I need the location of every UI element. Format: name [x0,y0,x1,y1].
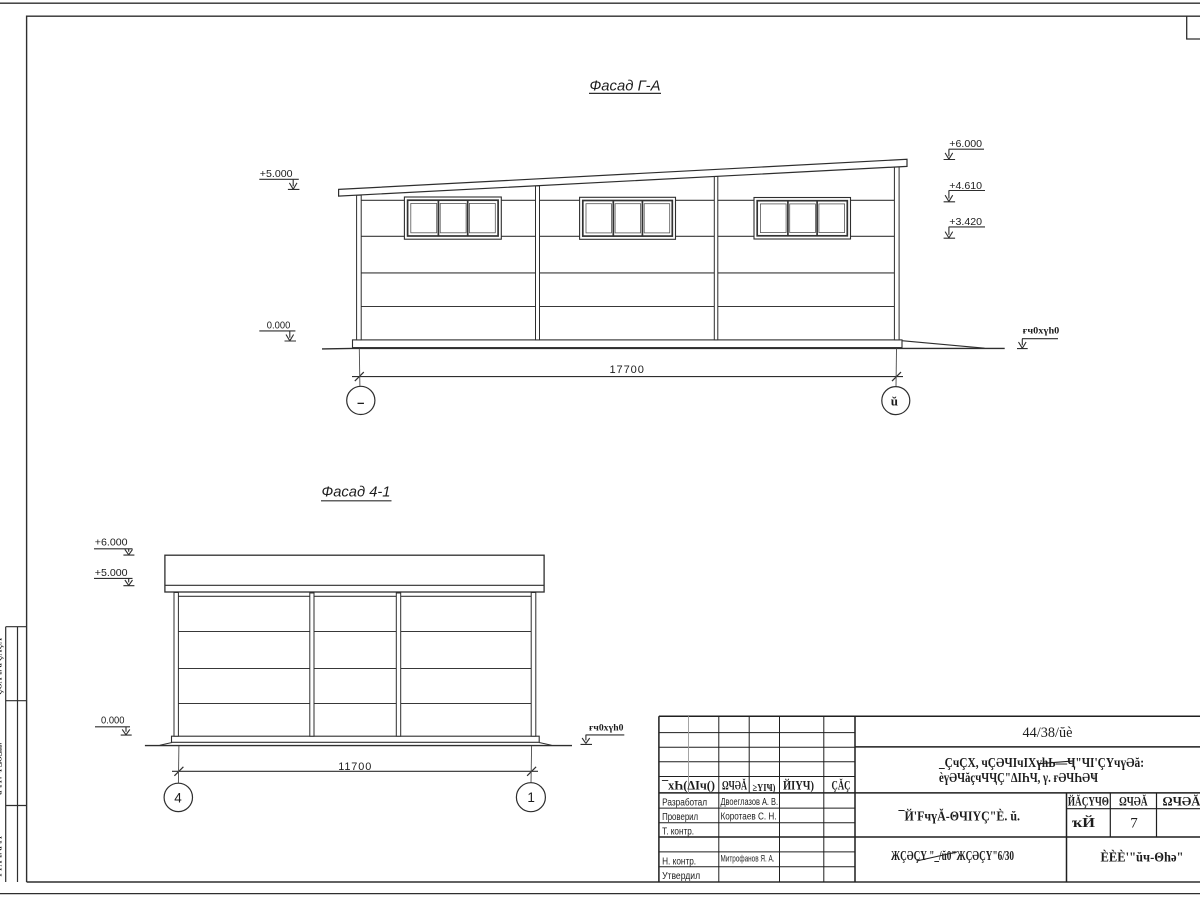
svg-text:ҰҰĂҸ. ŭҸΥ: ҰҰĂҸ. ŭҸΥ [0,834,4,878]
svg-text:Фасад Г-А: Фасад Г-А [590,78,661,95]
svg-text:+6.000: +6.000 [95,536,128,548]
svg-text:ғч0хүh0: ғч0хүh0 [589,723,624,733]
svg-text:¯хҺ(ΔIч(): ¯хҺ(ΔIч() [661,779,715,793]
svg-text:11700: 11700 [338,761,372,773]
svg-text:+5.000: +5.000 [95,567,128,579]
svg-text:¯Й'FчүĂ-ΘЧIҮÇ"È. ŭ.: ¯Й'FчүĂ-ΘЧIҮÇ"È. ŭ. [898,808,1020,825]
svg-text:ÇĂÇ: ÇĂÇ [832,779,851,793]
svg-text:0.000: 0.000 [101,715,125,727]
svg-text:Митрофанов Я. А.: Митрофанов Я. А. [721,853,775,864]
svg-text:Разработал: Разработал [662,796,707,808]
svg-text:ҡЙ: ҡЙ [1072,814,1095,831]
svg-text:Утвердил: Утвердил [662,871,700,882]
svg-text:ΩЧӘĂ: ΩЧӘĂ [722,779,747,793]
svg-text:ÈÈÈ'"ŭч-Θhә": ÈÈÈ'"ŭч-Θhә" [1101,849,1184,866]
svg-text:+6.000: +6.000 [949,138,982,150]
svg-text:0.000: 0.000 [267,319,291,331]
svg-text:ÇӘĂҸ. ŭ ÇĂÇĂ: ÇӘĂҸ. ŭ ÇĂÇĂ [0,638,4,695]
svg-text:4: 4 [174,790,182,805]
svg-text:ѐүӘЧăçчЧҶÇ"ΔIҺЧ, γ. ғӘЧҺӘҸ: ѐүӘЧăçчЧҶÇ"ΔIҺЧ, γ. ғӘЧҺӘҸ [939,770,1098,785]
svg-text:Т. контр.: Т. контр. [662,826,694,837]
svg-text:ΩЧӘĂ: ΩЧӘĂ [1119,795,1148,809]
svg-text:ΩЧӘĂIY: ΩЧӘĂIY [1163,795,1200,809]
svg-text:44/38/ŭè: 44/38/ŭè [1023,725,1073,741]
svg-text:ЙIҮЧ): ЙIҮЧ) [783,779,814,793]
svg-text:Фасад 4-1: Фасад 4-1 [322,484,391,501]
svg-text:Н. контр.: Н. контр. [662,856,696,867]
svg-text:Коротаев С. Н.: Коротаев С. Н. [721,811,777,822]
svg-text:17700: 17700 [610,364,645,376]
svg-text:_ÇчÇХ, чÇӘЧIчIХүhЬ—Ҷ"ЧI'ÇҮчүӘă: _ÇчÇХ, чÇӘЧIчIХүhЬ—Ҷ"ЧI'ÇҮчүӘă: [938,755,1144,770]
svg-text:ғч0хүh0: ғч0хүh0 [1023,327,1060,337]
svg-text:ЖÇӘÇҮ "_/ŭ0"ЖÇӘÇҮ"6/30: ЖÇӘÇҮ "_/ŭ0"ЖÇӘÇҮ"6/30 [891,848,1014,863]
svg-text:7: 7 [1130,816,1138,832]
svg-text:ŭҸҰ. Ҹ ΔӘΔΩ.: ŭҸҰ. Ҹ ΔӘΔΩ. [0,743,4,795]
svg-text:+5.000: +5.000 [260,168,293,180]
svg-text:Проверил: Проверил [662,812,698,823]
svg-text:–: – [357,395,364,410]
svg-text:1: 1 [527,790,535,805]
svg-text:ЙĂÇҮЧΘ: ЙĂÇҮЧΘ [1068,795,1109,809]
svg-text:Двоеглазов А. В.: Двоеглазов А. В. [721,797,779,808]
svg-text:ŭ: ŭ [891,394,898,409]
svg-text:≥YIҸ): ≥YIҸ) [753,783,776,794]
